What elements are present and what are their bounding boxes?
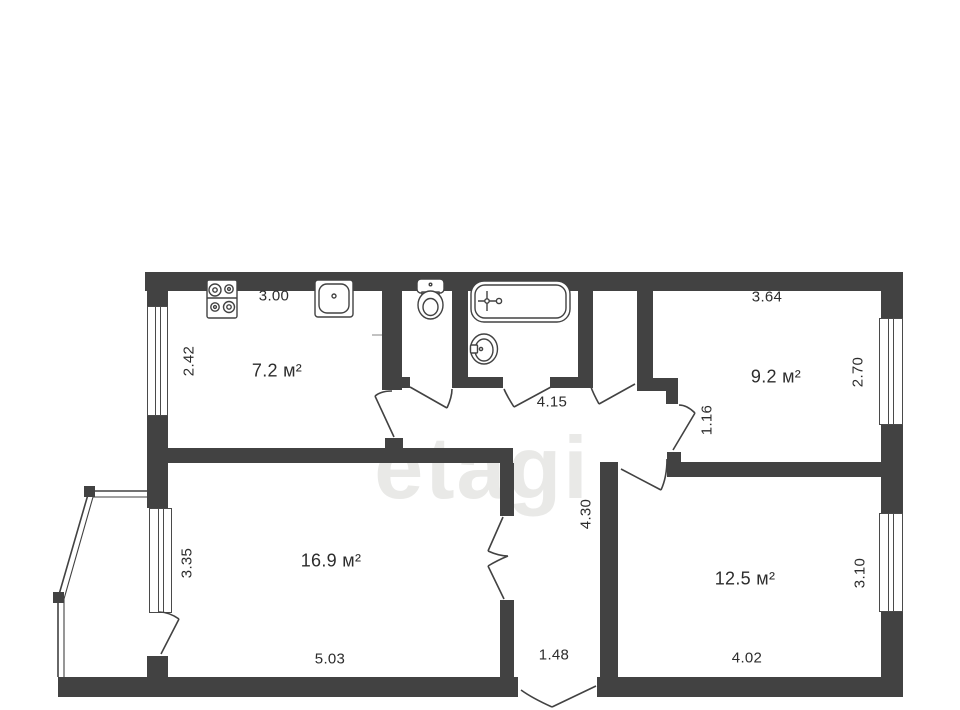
dim-hall-width: 4.15 xyxy=(537,394,567,411)
door-swing-closet xyxy=(591,384,635,404)
dim-hall-length: 4.30 xyxy=(578,499,595,529)
dim-living-width: 5.03 xyxy=(315,651,345,668)
door-swing-entrance xyxy=(521,686,596,707)
dim-hall-entry: 1.48 xyxy=(539,647,569,664)
area-kitchen: 7.2 м² xyxy=(252,361,302,382)
door-swing-living-double xyxy=(488,517,508,599)
kitchen-sink-icon xyxy=(315,280,353,317)
stove-icon xyxy=(207,280,237,318)
dim-kitchen-width: 3.00 xyxy=(259,288,289,305)
washbasin-icon xyxy=(471,334,498,364)
area-bedroom2: 12.5 м² xyxy=(715,569,776,590)
door-swing-kitchen xyxy=(375,391,394,437)
dim-bedroom-door: 1.16 xyxy=(699,405,716,435)
dim-living-depth: 3.35 xyxy=(179,548,196,578)
area-bedroom: 9.2 м² xyxy=(751,367,801,388)
balcony-railing xyxy=(53,486,148,677)
fixtures-layer xyxy=(0,0,960,710)
door-swing-balcony xyxy=(159,612,179,654)
door-swing-bedroom xyxy=(673,405,695,450)
floor-plan: etagi xyxy=(0,0,960,710)
door-swing-bedroom2 xyxy=(621,459,667,490)
bathtub-icon xyxy=(471,281,570,322)
dim-bedroom-depth: 2.70 xyxy=(850,357,867,387)
dim-bedroom2-depth: 3.10 xyxy=(852,558,869,588)
area-living: 16.9 м² xyxy=(301,551,362,572)
door-swing-wc xyxy=(410,387,452,408)
toilet-icon xyxy=(417,279,444,319)
dim-bedroom-width: 3.64 xyxy=(752,289,782,306)
dim-kitchen-depth: 2.42 xyxy=(181,346,198,376)
dim-bedroom2-width: 4.02 xyxy=(732,650,762,667)
